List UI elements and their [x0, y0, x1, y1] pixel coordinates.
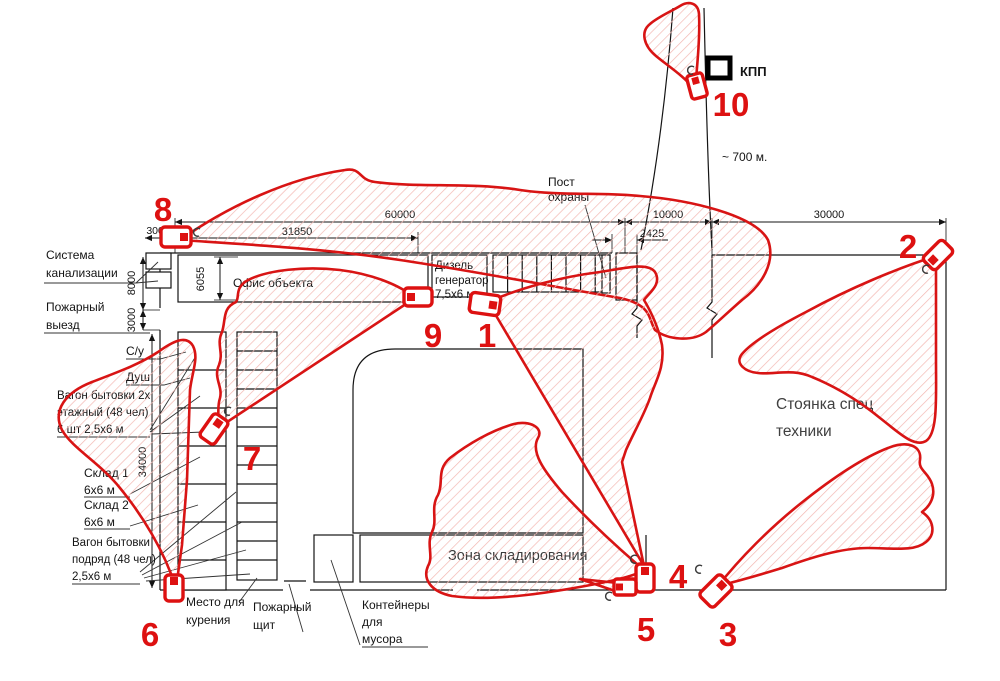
rotation-mark-5 — [606, 592, 612, 600]
sewage-box-2 — [146, 272, 171, 288]
smoking-label-1: Место для — [186, 595, 245, 609]
dim-3000-left: 3000 — [126, 308, 138, 332]
camera-number-8: 8 — [154, 191, 172, 228]
containers-label-2: для — [362, 615, 383, 629]
camera-icon-5 — [614, 579, 636, 595]
camera-number-10: 10 — [713, 86, 750, 123]
distance-label: ~ 700 м. — [722, 150, 767, 164]
special-parking-label-2: техники — [776, 423, 832, 440]
fire-exit-label-1: Пожарный — [46, 300, 105, 314]
smoking-label-2: курения — [186, 613, 230, 627]
cabin-row-label-1: Вагон бытовки — [72, 537, 150, 549]
warehouse2-label-1: Склад 2 — [84, 498, 129, 512]
camera-icon-4 — [636, 564, 654, 592]
camera-number-4: 4 — [669, 558, 688, 595]
camera-number-2: 2 — [899, 228, 917, 265]
fire-shield-label-1: Пожарный — [253, 600, 312, 614]
camera-icon-9 — [404, 288, 432, 306]
site-plan-canvas: 60000 31850 3000 10000 2425 30000 8000 3… — [0, 0, 1000, 681]
coverage-area-2 — [739, 256, 936, 443]
diesel-label-3: 7,5х6 м — [435, 289, 474, 301]
diesel-label-2: генератор — [435, 275, 489, 287]
fire-exit-label-2: выезд — [46, 318, 80, 332]
camera-number-7: 7 — [243, 440, 261, 477]
wc-label: С/у — [126, 344, 144, 358]
camera-number-5: 5 — [637, 611, 655, 648]
fire-shield-label-2: щит — [253, 618, 276, 632]
dim-6055: 6055 — [195, 267, 207, 291]
coverage-area-6 — [59, 340, 196, 588]
warehouse2-label-2: 6х6 м — [84, 515, 115, 529]
coverage-area-3 — [718, 444, 933, 586]
checkpoint-building — [708, 58, 730, 78]
camera-number-6: 6 — [141, 616, 159, 653]
checkpoint-label: КПП — [740, 64, 767, 79]
camera-icon-1 — [469, 292, 501, 316]
camera-number-9: 9 — [424, 317, 442, 354]
camera-icon-6 — [165, 575, 183, 601]
rotation-mark-3 — [696, 565, 702, 573]
cabin-row-label-2: подряд (48 чел) — [72, 554, 156, 566]
sewage-label-2: канализации — [46, 266, 118, 280]
camera-icon-10 — [686, 72, 708, 99]
guard-post-label-1: Пост — [548, 175, 575, 189]
dim-30000: 30000 — [814, 209, 845, 221]
camera-number-3: 3 — [719, 616, 737, 653]
sewage-label-1: Система — [46, 248, 95, 262]
camera-icon-8 — [161, 227, 191, 247]
containers-label-3: мусора — [362, 632, 403, 646]
site-plan-drawing: 60000 31850 3000 10000 2425 30000 8000 3… — [0, 0, 1000, 681]
cabin-row-label-3: 2,5х6 м — [72, 571, 111, 583]
sewage-box-1 — [146, 253, 171, 269]
camera-number-1: 1 — [478, 317, 496, 354]
containers-label-1: Контейнеры — [362, 598, 430, 612]
warehouse1-label-2: 6х6 м — [84, 483, 115, 497]
waste-containers-box — [314, 535, 353, 582]
